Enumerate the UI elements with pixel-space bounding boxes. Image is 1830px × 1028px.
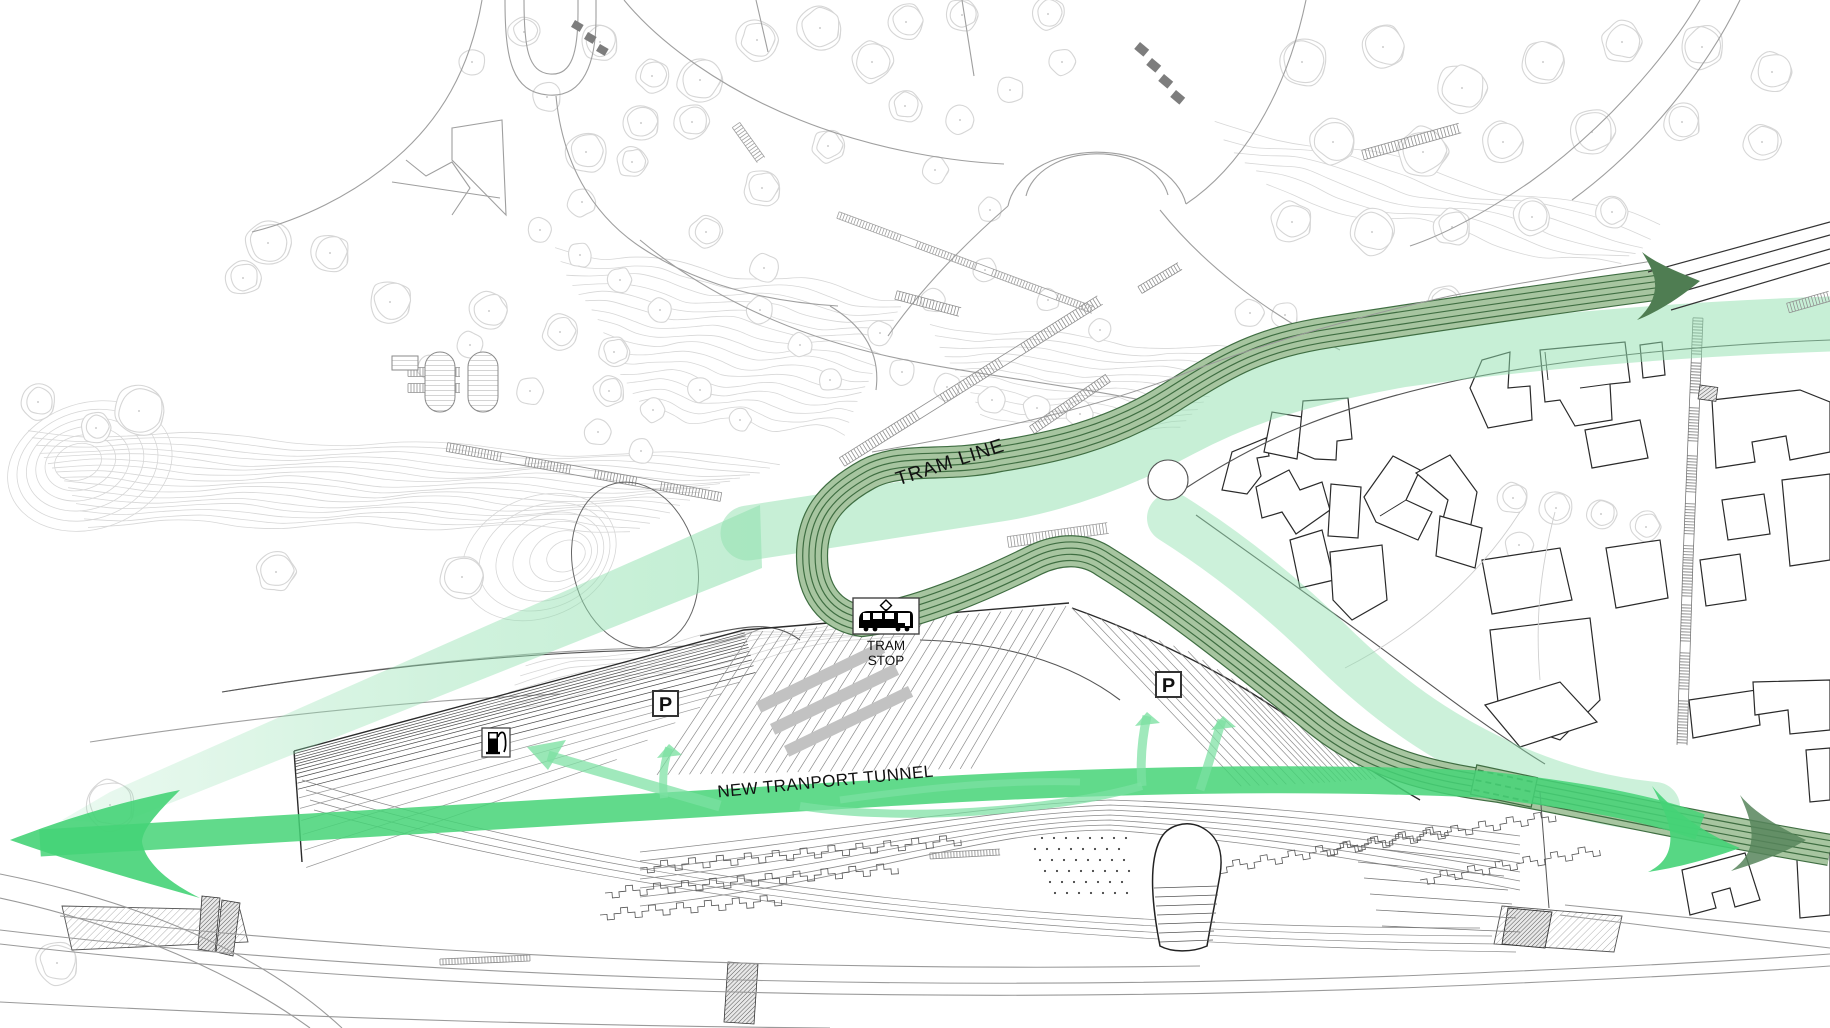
svg-text:STOP: STOP [868, 653, 905, 668]
svg-text:P: P [1162, 675, 1175, 697]
svg-text:TRAM: TRAM [867, 638, 905, 653]
svg-text:P: P [659, 694, 672, 716]
